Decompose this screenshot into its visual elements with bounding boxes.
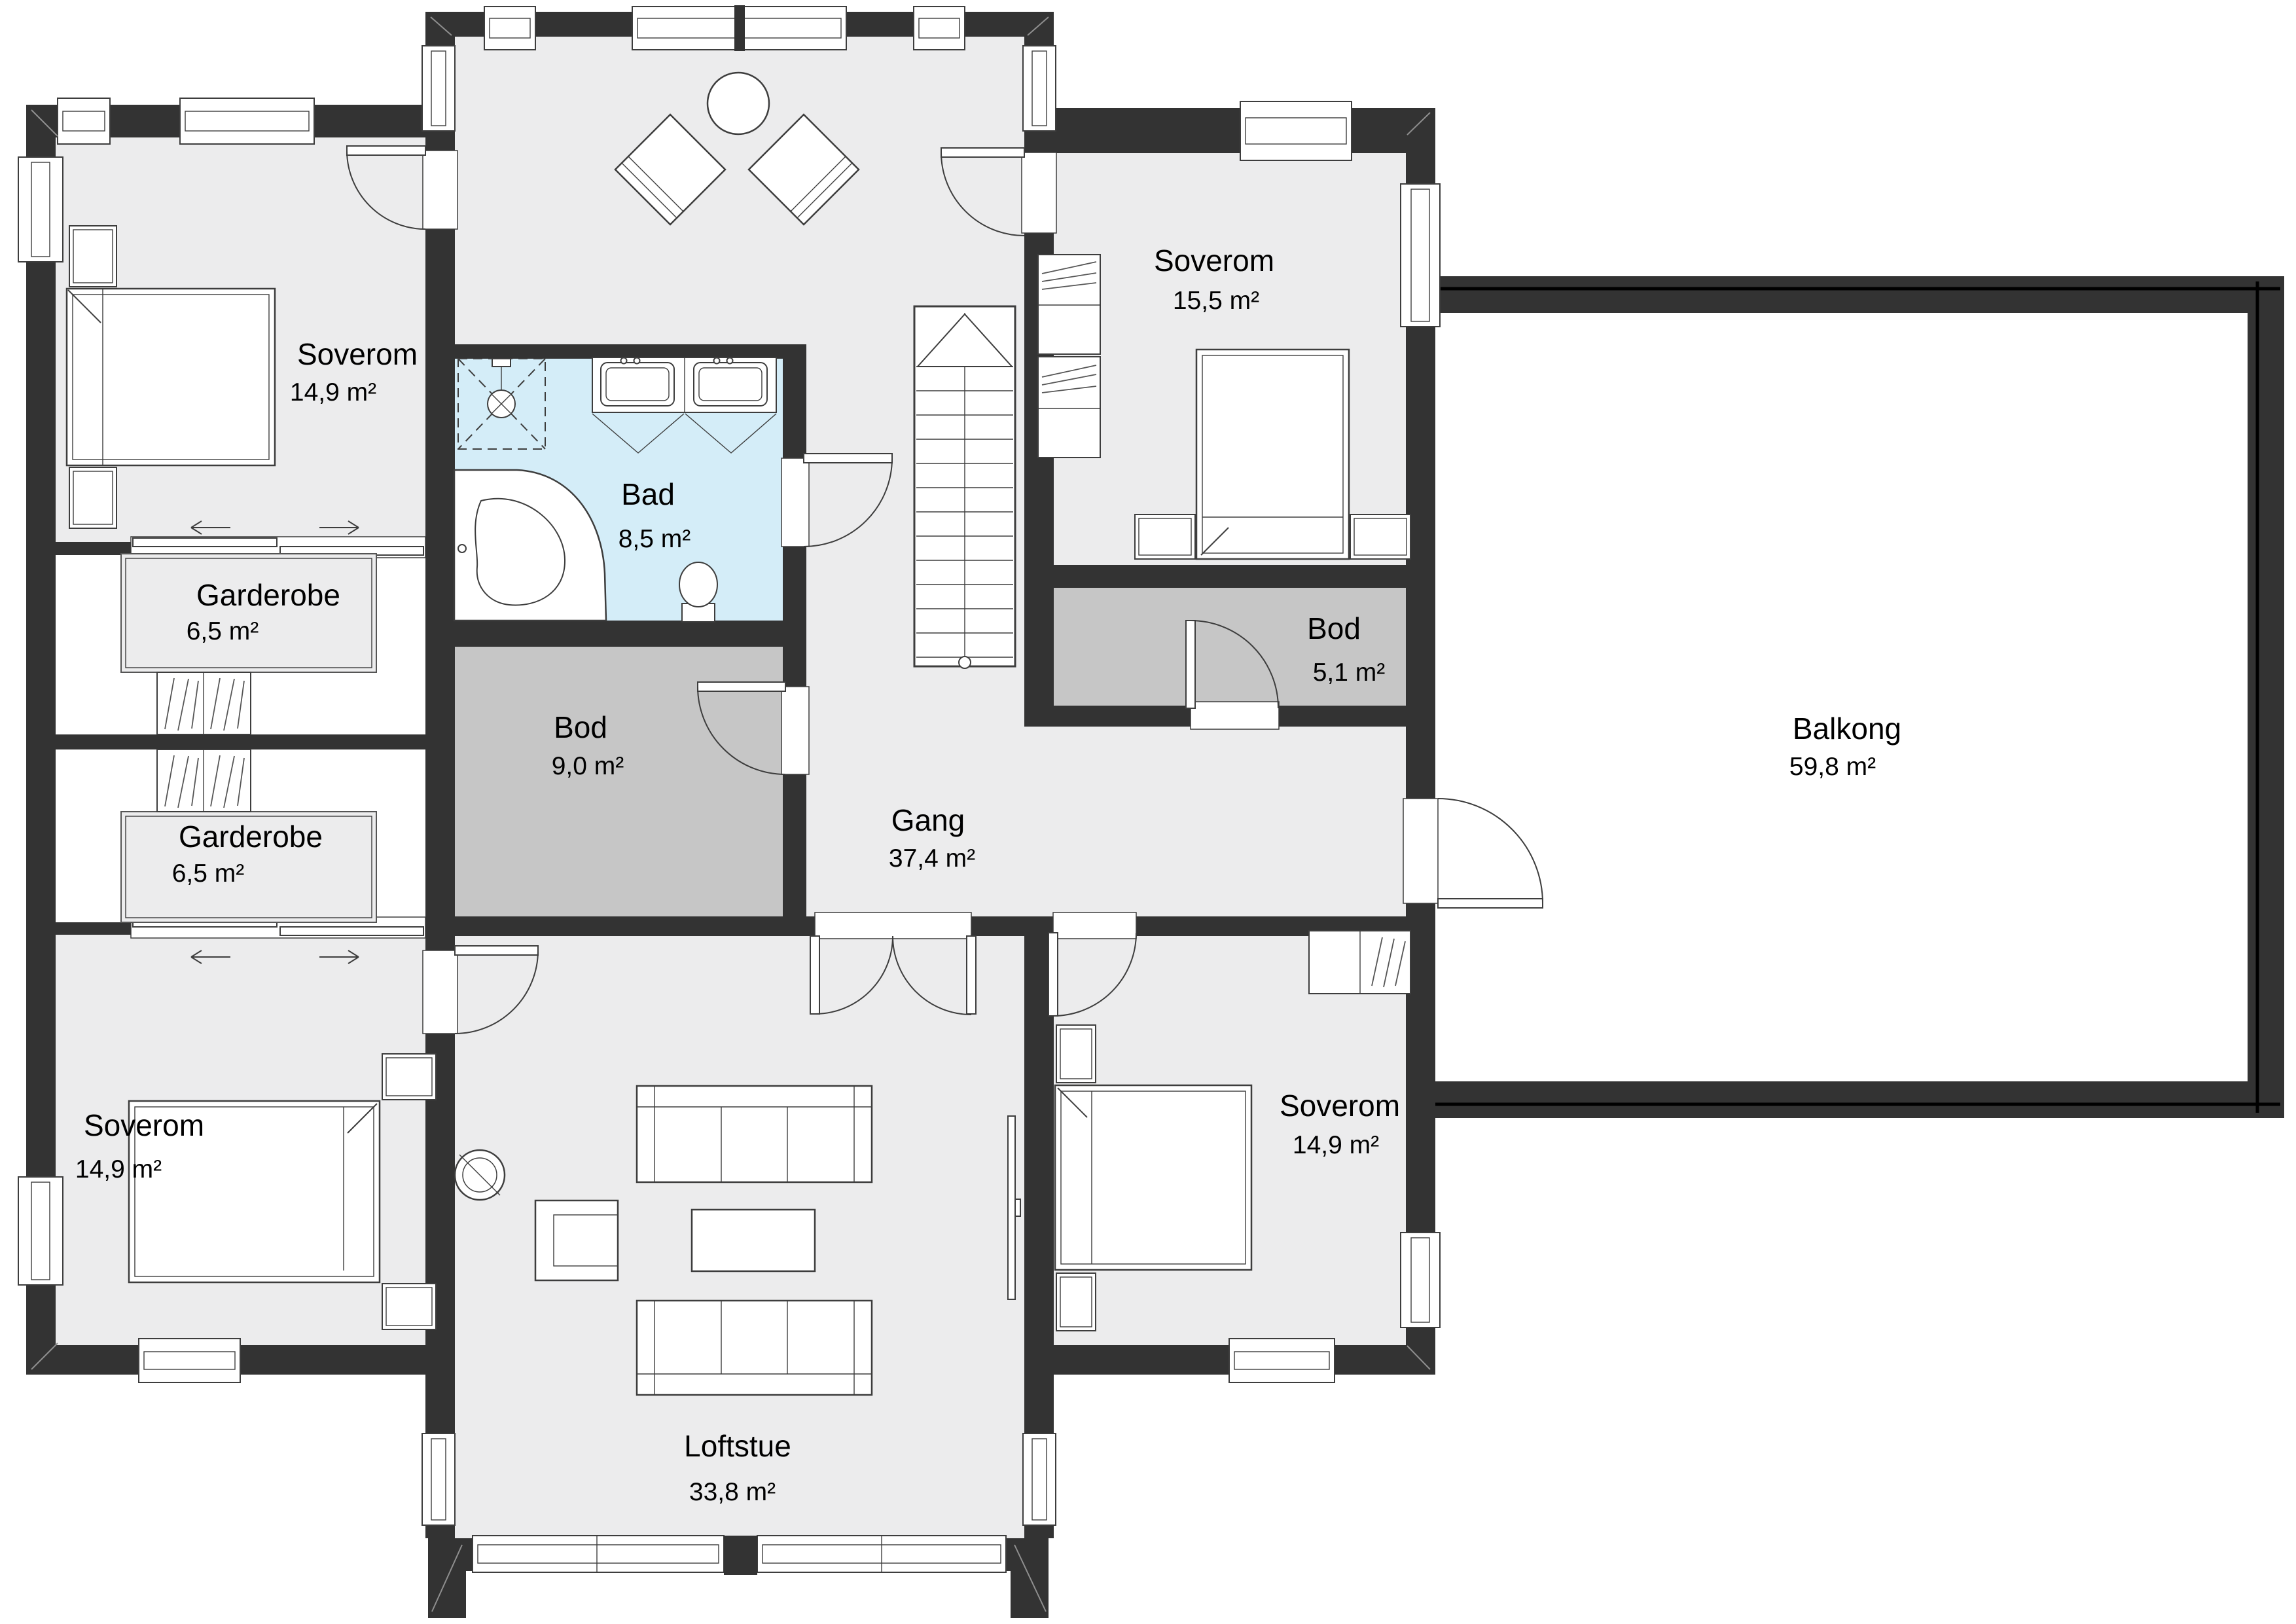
window	[1401, 1233, 1440, 1327]
area-bod-center: 9,0 m²	[552, 752, 624, 780]
window	[1023, 1434, 1056, 1525]
area-soverom-bottom-right: 14,9 m²	[1293, 1131, 1379, 1159]
window	[914, 7, 965, 50]
area-gang: 37,4 m²	[889, 844, 975, 873]
area-garderobe-lower: 6,5 m²	[172, 859, 245, 888]
window	[422, 1434, 455, 1525]
area-soverom-top-left: 14,9 m²	[290, 378, 376, 406]
label-soverom-bottom-right: Soverom	[1280, 1089, 1400, 1123]
window	[1240, 101, 1352, 160]
label-gang: Gang	[891, 803, 965, 837]
area-soverom-bottom-left: 14,9 m²	[75, 1155, 162, 1183]
label-bod-right: Bod	[1307, 611, 1361, 645]
room-gang-right	[1024, 723, 1406, 916]
sofa-icon	[637, 1086, 872, 1182]
label-soverom-bottom-left: Soverom	[84, 1108, 204, 1142]
toilet-icon	[679, 562, 717, 622]
label-balkong: Balkong	[1793, 712, 1901, 746]
window	[139, 1339, 240, 1382]
round-table-icon	[708, 73, 769, 134]
sofa-icon	[637, 1301, 872, 1395]
window	[18, 157, 63, 262]
window	[484, 7, 535, 50]
window	[422, 46, 455, 131]
window	[18, 1177, 63, 1285]
floor-plan-page: Soverom 14,9 m² Garderobe 6,5 m² Gardero…	[0, 0, 2296, 1624]
window	[1229, 1339, 1335, 1382]
floor-plan-drawing: Soverom 14,9 m² Garderobe 6,5 m² Gardero…	[0, 0, 2296, 1624]
window	[757, 1536, 1006, 1572]
window	[632, 5, 846, 51]
area-bad: 8,5 m²	[619, 525, 691, 553]
window	[58, 98, 110, 144]
label-bad: Bad	[621, 477, 675, 511]
wood-stove-icon	[455, 1150, 505, 1200]
label-soverom-top-right: Soverom	[1154, 244, 1274, 278]
label-garderobe-lower: Garderobe	[179, 820, 323, 854]
label-garderobe-upper: Garderobe	[196, 578, 340, 612]
window	[1023, 46, 1056, 131]
window	[180, 98, 314, 144]
wardrobe-soverom-top-right	[1038, 255, 1100, 458]
area-soverom-top-right: 15,5 m²	[1173, 287, 1259, 315]
label-soverom-top-left: Soverom	[297, 337, 418, 371]
area-loftstue: 33,8 m²	[689, 1478, 776, 1506]
stairs	[914, 306, 1015, 668]
label-loftstue: Loftstue	[684, 1429, 791, 1463]
label-bod-center: Bod	[554, 710, 607, 744]
window	[473, 1536, 724, 1572]
area-balkong: 59,8 m²	[1789, 753, 1876, 781]
window	[1401, 184, 1440, 327]
armchair-icon	[535, 1200, 618, 1280]
wardrobe-soverom-bottom-right	[1309, 931, 1410, 994]
area-garderobe-upper: 6,5 m²	[187, 617, 259, 645]
area-bod-right: 5,1 m²	[1313, 659, 1386, 687]
window-post	[724, 1536, 757, 1575]
room-balkong	[1435, 313, 2248, 1081]
coffee-table-icon	[692, 1210, 815, 1271]
room-bod-right	[1054, 586, 1406, 707]
